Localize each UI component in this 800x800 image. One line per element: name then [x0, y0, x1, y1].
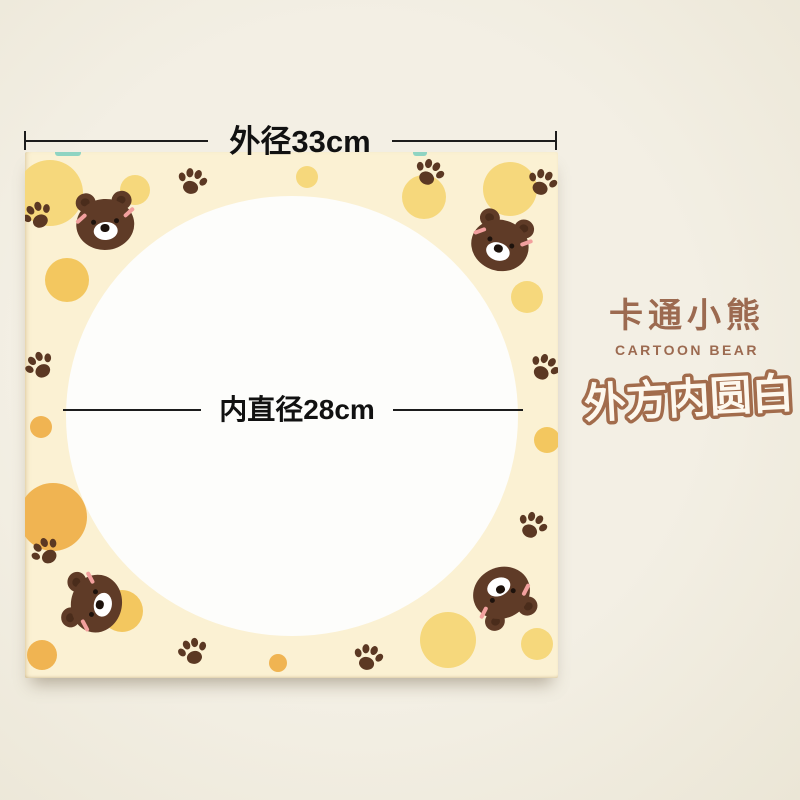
inner-dim-line-left [63, 409, 201, 411]
product-subtitle: CARTOON BEAR [573, 342, 800, 358]
outer-dim-line-left [26, 140, 208, 142]
product-title: 卡通小熊 [573, 288, 800, 337]
product-photo: 内直径28cm 外径33cm 卡通小熊 CARTOON BEAR 外方内圆白 [0, 0, 800, 800]
inner-dimension-label: 内直径28cm [201, 388, 393, 428]
product-tagline-svg: 外方内圆白 [571, 362, 800, 436]
product-tagline: 外方内圆白 [583, 368, 795, 428]
product-tagline-wrap: 外方内圆白 [571, 362, 800, 441]
side-text-block: 卡通小熊 CARTOON BEAR 外方内圆白 [573, 288, 800, 435]
inner-dim-line-right [393, 409, 523, 411]
outer-dim-line-right [392, 140, 556, 142]
outer-dim-tick-right [555, 131, 557, 150]
square-mat: 内直径28cm [25, 152, 558, 678]
inner-dimension-annotation: 内直径28cm [25, 152, 558, 678]
